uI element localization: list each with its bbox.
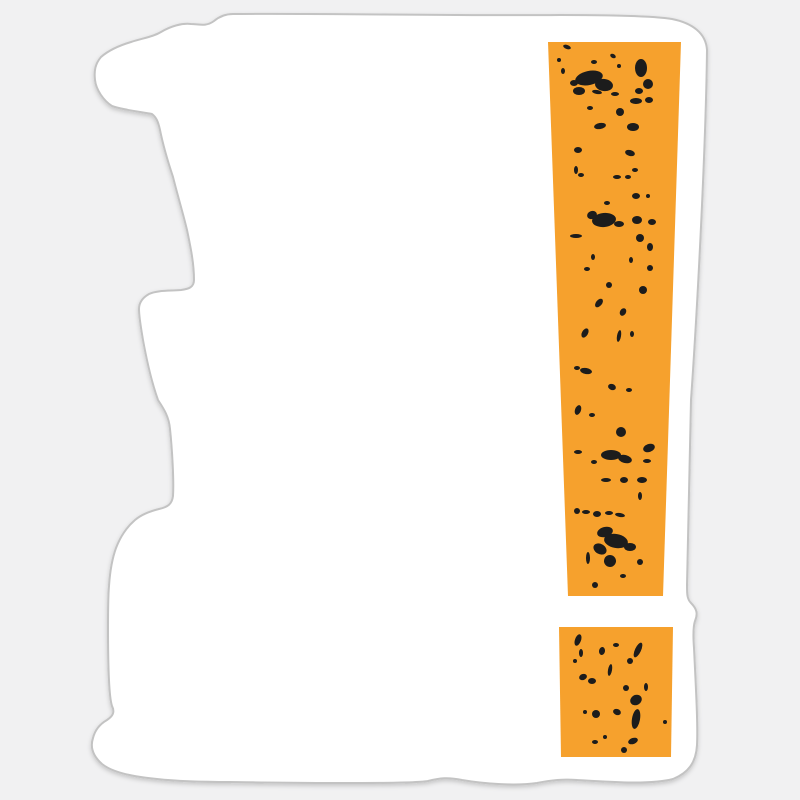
grunge-mark xyxy=(663,720,667,724)
sticker-mockup xyxy=(0,0,800,800)
grunge-mark xyxy=(630,331,634,337)
grunge-mark xyxy=(589,413,595,417)
grunge-mark xyxy=(591,60,597,64)
grunge-mark xyxy=(643,79,653,89)
grunge-mark xyxy=(635,59,647,77)
grunge-mark xyxy=(621,747,627,753)
sticker-svg xyxy=(0,0,800,800)
grunge-mark xyxy=(647,265,653,271)
grunge-mark xyxy=(624,543,636,551)
exclamation-bar xyxy=(548,42,681,596)
grunge-mark xyxy=(582,510,590,514)
grunge-mark xyxy=(601,450,621,460)
grunge-mark xyxy=(629,257,633,263)
grunge-mark xyxy=(604,201,610,205)
grunge-mark xyxy=(613,175,621,179)
grunge-mark xyxy=(638,492,642,500)
grunge-mark xyxy=(616,427,626,437)
grunge-mark xyxy=(617,64,621,68)
grunge-mark xyxy=(614,221,624,227)
grunge-mark xyxy=(626,388,632,392)
grunge-mark xyxy=(632,193,640,199)
grunge-mark xyxy=(574,147,582,153)
grunge-mark xyxy=(592,740,598,744)
grunge-mark xyxy=(627,123,639,131)
grunge-mark xyxy=(587,106,593,110)
grunge-mark xyxy=(643,459,651,463)
grunge-mark xyxy=(606,282,612,288)
grunge-mark xyxy=(601,478,611,482)
grunge-mark xyxy=(611,92,619,96)
grunge-mark xyxy=(632,168,638,172)
grunge-mark xyxy=(573,87,585,95)
grunge-mark xyxy=(630,98,642,104)
grunge-mark xyxy=(591,460,597,464)
grunge-mark xyxy=(574,366,580,370)
grunge-mark xyxy=(625,175,631,179)
grunge-mark xyxy=(570,80,578,86)
grunge-mark xyxy=(639,286,647,294)
grunge-mark xyxy=(570,234,582,238)
grunge-mark xyxy=(574,166,578,174)
grunge-mark xyxy=(561,68,565,74)
grunge-mark xyxy=(644,683,648,691)
grunge-mark xyxy=(645,97,653,103)
grunge-mark xyxy=(583,710,587,714)
grunge-mark xyxy=(584,267,590,271)
grunge-mark xyxy=(635,88,643,94)
exclamation-mark xyxy=(548,42,681,757)
grunge-mark xyxy=(578,173,584,177)
grunge-mark xyxy=(620,574,626,578)
grunge-mark xyxy=(647,243,653,251)
grunge-mark xyxy=(613,643,619,647)
grunge-mark xyxy=(579,649,583,657)
grunge-mark xyxy=(605,511,613,515)
grunge-mark xyxy=(592,710,600,718)
grunge-mark xyxy=(588,678,596,684)
grunge-mark xyxy=(648,219,656,225)
grunge-mark xyxy=(573,659,577,663)
grunge-mark xyxy=(632,216,642,224)
grunge-mark xyxy=(623,685,629,691)
grunge-mark xyxy=(620,477,628,483)
grunge-mark xyxy=(593,511,601,517)
grunge-mark xyxy=(557,58,561,62)
grunge-mark xyxy=(603,735,607,739)
grunge-mark xyxy=(586,552,590,564)
grunge-mark xyxy=(637,477,647,483)
grunge-mark xyxy=(636,234,644,242)
grunge-mark xyxy=(574,450,582,454)
grunge-mark xyxy=(627,658,633,664)
grunge-mark xyxy=(616,108,624,116)
grunge-mark xyxy=(592,582,598,588)
grunge-mark xyxy=(574,508,580,514)
grunge-mark xyxy=(591,254,595,260)
grunge-mark xyxy=(646,194,650,198)
grunge-mark xyxy=(637,559,643,565)
